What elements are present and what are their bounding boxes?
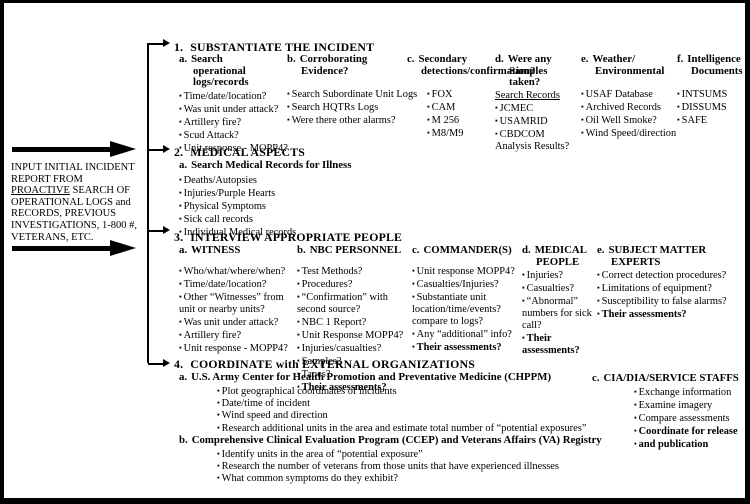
column-heading: b.Comprehensive Clinical Evaluation Prog… xyxy=(179,435,615,447)
column-d: d.Were any Samples taken?Search Records▪… xyxy=(495,54,579,153)
bullet-icon: ▪ xyxy=(495,129,498,138)
item-text: Scud Attack? xyxy=(184,130,239,141)
bullet-icon: ▪ xyxy=(297,330,300,339)
bullet-icon: ▪ xyxy=(677,102,680,111)
item-text: Search Records xyxy=(495,90,560,101)
bullet-icon: ▪ xyxy=(179,130,182,139)
item-text: Deaths/Autopsies xyxy=(184,175,257,186)
column-label: a. xyxy=(179,371,187,383)
list-item: ▪Research additional units in the area a… xyxy=(217,422,615,434)
item-text: Time/date/location? xyxy=(184,279,267,290)
column-main: a.U.S. Army Center for Health Promotion … xyxy=(179,372,615,485)
note-text: SEARCH OF xyxy=(70,185,130,196)
item-list: ▪Exchange information▪Examine imagery▪Co… xyxy=(592,386,750,451)
item-text: Their assessments? xyxy=(522,333,580,356)
bullet-icon: ▪ xyxy=(179,214,182,223)
list-item: ▪Artillery fire? xyxy=(179,329,297,342)
branch-arrow-section-2-icon xyxy=(148,145,170,154)
column-a: a.Search Medical Records for Illness▪Dea… xyxy=(179,160,750,239)
section-s3: 3.INTERVIEW APPROPRIATE PEOPLEa.WITNESS▪… xyxy=(174,231,750,244)
column-heading-text: U.S. Army Center for Health Promotion an… xyxy=(191,371,551,383)
list-item: ▪Injuries? xyxy=(522,269,598,282)
column-label: e. xyxy=(581,53,589,65)
list-item: ▪Archived Records xyxy=(581,101,677,114)
column-heading-text: MEDICAL PEOPLE xyxy=(535,244,587,268)
bullet-icon: ▪ xyxy=(581,102,584,111)
column-f: f.Intelligence Documents▪INTSUMS▪DISSUMS… xyxy=(677,54,750,127)
list-item: ▪Their assessments? xyxy=(522,332,598,357)
column-e: e.Weather/ Environmental▪USAF Database▪A… xyxy=(581,54,677,140)
item-text: Research additional units in the area an… xyxy=(222,423,587,434)
item-text: Substantiate unit location/time/events? … xyxy=(412,292,501,327)
list-item: ▪Artillery fire? xyxy=(179,116,285,129)
column-heading-text: Comprehensive Clinical Evaluation Progra… xyxy=(192,434,602,446)
arrow-head-icon xyxy=(110,141,136,157)
item-text: Exchange information xyxy=(639,387,732,398)
column-label: d. xyxy=(495,53,504,65)
column-heading: a.Search operational logs/records xyxy=(179,54,263,89)
item-list: ▪Plot geographical coordinates of incide… xyxy=(179,385,615,435)
column-heading-text: Intelligence Documents xyxy=(687,53,742,77)
item-text: Date/time of incident xyxy=(222,398,310,409)
item-list: ▪Search Subordinate Unit Logs▪Search HQT… xyxy=(287,88,415,127)
bullet-icon: ▪ xyxy=(412,279,415,288)
note-line: INPUT INITIAL INCIDENT xyxy=(11,162,156,174)
column-heading: e.SUBJECT MATTER EXPERTS xyxy=(597,245,743,268)
item-text: Their assessments? xyxy=(602,309,687,320)
note-line: INVESTIGATIONS, 1-800 #, xyxy=(11,220,156,232)
list-item: ▪INTSUMS xyxy=(677,88,750,101)
bullet-icon: ▪ xyxy=(179,343,182,352)
column-heading: c.COMMANDER(S) xyxy=(412,245,520,264)
item-text: CAM xyxy=(432,102,456,113)
column-heading: b.Corroborating Evidence? xyxy=(287,54,397,87)
item-text: Unit response MOPP4? xyxy=(417,266,515,277)
list-item: ▪DISSUMS xyxy=(677,101,750,114)
column-heading-text: Search Medical Records for Illness xyxy=(191,159,351,171)
list-item: ▪Unit response - MOPP4? xyxy=(179,342,297,355)
list-item: ▪Plot geographical coordinates of incide… xyxy=(217,385,615,397)
column-heading-text: Weather/ Environmental xyxy=(593,53,665,77)
column-heading: b.NBC PERSONNEL xyxy=(297,245,409,264)
column-c: c.COMMANDER(S)▪Unit response MOPP4?▪Casu… xyxy=(412,245,520,354)
list-item: ▪Wind speed and direction xyxy=(217,409,615,421)
item-list: ▪INTSUMS▪DISSUMS▪SAFE xyxy=(677,88,750,127)
note-line: REPORT FROM xyxy=(11,174,156,186)
list-item: ▪Casualties/Injuries? xyxy=(412,278,520,291)
item-text: Susceptibility to false alarms? xyxy=(602,296,727,307)
item-text: Correct detection procedures? xyxy=(602,270,727,281)
list-item: ▪Substantiate unit location/time/events?… xyxy=(412,291,520,328)
arrow-shaft xyxy=(12,147,114,152)
item-text: Unit Response MOPP4? xyxy=(302,330,404,341)
column-heading: f.Intelligence Documents xyxy=(677,54,750,87)
bullet-icon: ▪ xyxy=(522,283,525,292)
branch-arrow-section-1-icon xyxy=(148,39,170,48)
bullet-icon: ▪ xyxy=(412,342,415,351)
section-title-text: MEDICAL ASPECTS xyxy=(190,145,305,159)
item-text: Physical Symptoms xyxy=(184,201,266,212)
note-line: OPERATIONAL LOGS and xyxy=(11,197,156,209)
connector-line xyxy=(148,43,164,45)
list-item: ▪Search HQTRs Logs xyxy=(287,101,415,114)
list-item: ▪M8/M9 xyxy=(427,127,495,140)
branch-arrow-section-3-icon xyxy=(148,226,170,235)
list-item: ▪JCMEC xyxy=(495,102,579,115)
item-text: Wind speed and direction xyxy=(222,410,328,421)
item-text: Was unit under attack? xyxy=(184,104,279,115)
list-item: ▪FOX xyxy=(427,88,495,101)
section-s2: 2.MEDICAL ASPECTSa.Search Medical Record… xyxy=(174,146,750,239)
column-heading-text: Search operational logs/records xyxy=(191,53,248,88)
item-text: Who/what/where/when? xyxy=(184,266,286,277)
bullet-icon: ▪ xyxy=(495,103,498,112)
item-text: CBDCOM xyxy=(500,129,545,140)
column-label: e. xyxy=(597,244,605,256)
item-list: ▪Injuries?▪Casualties?▪“Abnormal” number… xyxy=(522,269,598,357)
item-text: NBC 1 Report? xyxy=(302,317,367,328)
list-item: ▪Wind Speed/direction xyxy=(581,127,677,140)
column-c: c.Secondary detections/confirmation?▪FOX… xyxy=(407,54,495,140)
bullet-icon: ▪ xyxy=(522,270,525,279)
item-text: Any “additional” info? xyxy=(417,329,512,340)
column-heading: d.MEDICAL PEOPLE xyxy=(522,245,598,268)
list-item: ▪“Abnormal” numbers for sick call? xyxy=(522,295,598,332)
branch-arrow-section-4-icon xyxy=(148,359,170,368)
column-heading-text: Were any Samples taken? xyxy=(508,53,552,88)
item-text: Artillery fire? xyxy=(184,330,241,341)
item-text: Injuries/casualties? xyxy=(302,343,382,354)
list-item: ▪USAF Database xyxy=(581,88,677,101)
section-title: 2.MEDICAL ASPECTS xyxy=(174,146,750,159)
item-text: Procedures? xyxy=(302,279,353,290)
bullet-icon: ▪ xyxy=(297,317,300,326)
bullet-icon: ▪ xyxy=(179,317,182,326)
bullet-icon: ▪ xyxy=(297,266,300,275)
list-item: ▪Their assessments? xyxy=(597,308,749,321)
diagram-page: INPUT INITIAL INCIDENTREPORT FROMPROACTI… xyxy=(0,0,750,504)
column-b: b.Corroborating Evidence?▪Search Subordi… xyxy=(287,54,415,127)
bullet-icon: ▪ xyxy=(287,89,290,98)
column-heading-text: Corroborating Evidence? xyxy=(300,53,368,77)
section-number: 1. xyxy=(174,40,183,54)
bullet-icon: ▪ xyxy=(179,279,182,288)
bullet-icon: ▪ xyxy=(412,329,415,338)
item-list: ▪FOX▪CAM▪M 256▪M8/M9 xyxy=(407,88,495,140)
bullet-icon: ▪ xyxy=(179,266,182,275)
bullet-icon: ▪ xyxy=(217,461,220,470)
bullet-icon: ▪ xyxy=(179,104,182,113)
column-label: a. xyxy=(179,53,187,65)
connector-vertical-line xyxy=(147,43,149,363)
item-text: SAFE xyxy=(682,115,707,126)
list-item: ▪SAFE xyxy=(677,114,750,127)
item-text: Archived Records xyxy=(586,102,661,113)
list-item: ▪Injuries/Purple Hearts xyxy=(179,187,750,200)
list-item: ▪Exchange information xyxy=(634,386,750,399)
item-text: Was unit under attack? xyxy=(184,317,279,328)
list-item: ▪Sick call records xyxy=(179,213,750,226)
section-s4: 4.COORDINATE with EXTERNAL ORGANIZATIONS… xyxy=(174,358,750,486)
item-text: Limitations of equipment? xyxy=(602,283,712,294)
bullet-icon: ▪ xyxy=(217,473,220,482)
section-title: 4.COORDINATE with EXTERNAL ORGANIZATIONS xyxy=(174,358,750,371)
bullet-icon: ▪ xyxy=(179,117,182,126)
column-label: a. xyxy=(179,159,187,171)
item-text: Coordinate for release xyxy=(639,426,738,437)
list-item: ▪Procedures? xyxy=(297,278,409,291)
connector-line xyxy=(148,230,164,232)
arrow-head-icon xyxy=(110,240,136,256)
section-number: 2. xyxy=(174,145,183,159)
bullet-icon: ▪ xyxy=(427,115,430,124)
item-text: Artillery fire? xyxy=(184,117,241,128)
column-label: b. xyxy=(287,53,296,65)
bullet-icon: ▪ xyxy=(495,116,498,125)
connector-line xyxy=(148,363,164,365)
arrowhead-icon xyxy=(163,145,170,153)
item-text: Search HQTRs Logs xyxy=(292,102,379,113)
item-text: Other “Witnesses” from unit or nearby un… xyxy=(179,292,284,315)
column-heading-text: WITNESS xyxy=(191,244,240,256)
bullet-icon: ▪ xyxy=(677,115,680,124)
bullet-icon: ▪ xyxy=(597,283,600,292)
list-item: ▪Unit response MOPP4? xyxy=(412,265,520,278)
bullet-icon: ▪ xyxy=(287,115,290,124)
section-title: 3.INTERVIEW APPROPRIATE PEOPLE xyxy=(174,231,750,244)
bullet-icon: ▪ xyxy=(597,270,600,279)
bullet-icon: ▪ xyxy=(179,91,182,100)
item-text: What common symptoms do they exhibit? xyxy=(222,473,398,484)
list-item: ▪and publication xyxy=(634,438,750,451)
bullet-icon: ▪ xyxy=(412,292,415,301)
bullet-icon: ▪ xyxy=(634,439,637,448)
bullet-icon: ▪ xyxy=(677,89,680,98)
list-item: ▪Physical Symptoms xyxy=(179,200,750,213)
column-heading-text: COMMANDER(S) xyxy=(424,244,512,256)
item-text: FOX xyxy=(432,89,453,100)
list-item: ▪Was unit under attack? xyxy=(179,316,297,329)
arrow-shaft xyxy=(12,246,114,251)
item-text: Wind Speed/direction xyxy=(586,128,676,139)
bullet-icon: ▪ xyxy=(217,449,220,458)
section-s1: 1.SUBSTANTIATE THE INCIDENTa.Search oper… xyxy=(174,41,750,54)
item-text: Plot geographical coordinates of inciden… xyxy=(222,386,397,397)
note-line: PROACTIVE SEARCH OF xyxy=(11,185,156,197)
bullet-icon: ▪ xyxy=(522,296,525,305)
column-heading: d.Were any Samples taken? xyxy=(495,54,571,89)
bullet-icon: ▪ xyxy=(297,292,300,301)
list-item: ▪Time/date/location? xyxy=(179,278,297,291)
bullet-icon: ▪ xyxy=(297,279,300,288)
item-text: Injuries? xyxy=(527,270,563,281)
item-text: JCMEC xyxy=(500,103,534,114)
list-item: ▪Other “Witnesses” from unit or nearby u… xyxy=(179,291,297,316)
input-note: INPUT INITIAL INCIDENTREPORT FROMPROACTI… xyxy=(11,162,156,243)
connector-line xyxy=(148,149,164,151)
list-item: ▪Susceptibility to false alarms? xyxy=(597,295,749,308)
item-text: INTSUMS xyxy=(682,89,728,100)
column-heading: c.CIA/DIA/SERVICE STAFFS xyxy=(592,373,750,385)
column-heading: a.WITNESS xyxy=(179,245,297,264)
item-list: ▪Correct detection procedures?▪Limitatio… xyxy=(597,269,749,321)
column-c: c.CIA/DIA/SERVICE STAFFS▪Exchange inform… xyxy=(592,373,750,451)
section-number: 4. xyxy=(174,357,183,371)
item-text: USAMRID xyxy=(500,116,548,127)
list-item: ▪Date/time of incident xyxy=(217,397,615,409)
bullet-icon: ▪ xyxy=(179,201,182,210)
bullet-icon: ▪ xyxy=(179,175,182,184)
input-arrow-bottom-icon xyxy=(12,240,136,256)
arrowhead-icon xyxy=(163,39,170,47)
note-line: RECORDS, PREVIOUS xyxy=(11,208,156,220)
list-item: ▪Research the number of veterans from th… xyxy=(217,460,615,472)
note-text-underlined: PROACTIVE xyxy=(11,185,70,196)
list-item: ▪What common symptoms do they exhibit? xyxy=(217,472,615,484)
item-list: ▪Unit response MOPP4?▪Casualties/Injurie… xyxy=(412,265,520,354)
bullet-icon: ▪ xyxy=(634,387,637,396)
list-item: ▪Oil Well Smoke? xyxy=(581,114,677,127)
column-heading: a.Search Medical Records for Illness xyxy=(179,160,750,172)
arrowhead-icon xyxy=(163,359,170,367)
section-title-text: COORDINATE with EXTERNAL ORGANIZATIONS xyxy=(190,357,475,371)
column-heading: a.U.S. Army Center for Health Promotion … xyxy=(179,372,615,384)
section-title-text: SUBSTANTIATE THE INCIDENT xyxy=(190,40,374,54)
list-item: ▪Identify units in the area of “potentia… xyxy=(217,448,615,460)
list-item: ▪NBC 1 Report? xyxy=(297,316,409,329)
item-text: Injuries/Purple Hearts xyxy=(184,188,275,199)
list-item: ▪Deaths/Autopsies xyxy=(179,174,750,187)
list-item: ▪Time/date/location? xyxy=(179,90,285,103)
column-heading: e.Weather/ Environmental xyxy=(581,54,677,87)
item-text: “Confirmation” with second source? xyxy=(297,292,388,315)
bullet-icon: ▪ xyxy=(179,292,182,301)
column-label: c. xyxy=(412,244,420,256)
list-item: ▪CBDCOM xyxy=(495,128,579,141)
bullet-icon: ▪ xyxy=(412,266,415,275)
bullet-icon: ▪ xyxy=(634,400,637,409)
bullet-icon: ▪ xyxy=(581,89,584,98)
item-text: Compare assessments xyxy=(639,413,730,424)
item-text: Identify units in the area of “potential… xyxy=(222,449,423,460)
item-list: ▪Deaths/Autopsies▪Injuries/Purple Hearts… xyxy=(179,174,750,239)
bullet-icon: ▪ xyxy=(581,128,584,137)
list-item: ▪Casualties? xyxy=(522,282,598,295)
item-text: Research the number of veterans from tho… xyxy=(222,461,559,472)
item-text: Their assessments? xyxy=(417,342,502,353)
column-heading-text: SUBJECT MATTER EXPERTS xyxy=(609,244,707,268)
input-arrow-top-icon xyxy=(12,141,136,157)
column-label: b. xyxy=(297,244,306,256)
bullet-icon: ▪ xyxy=(634,426,637,435)
list-item: ▪Unit Response MOPP4? xyxy=(297,329,409,342)
column-e: e.SUBJECT MATTER EXPERTS▪Correct detecti… xyxy=(597,245,749,321)
item-text: USAF Database xyxy=(586,89,653,100)
list-item: ▪Who/what/where/when? xyxy=(179,265,297,278)
bullet-icon: ▪ xyxy=(179,188,182,197)
list-item: ▪Was unit under attack? xyxy=(179,103,285,116)
item-text: Examine imagery xyxy=(639,400,713,411)
item-text: Casualties? xyxy=(527,283,574,294)
list-item: ▪Were there other alarms? xyxy=(287,114,415,127)
list-item: ▪Examine imagery xyxy=(634,399,750,412)
item-list: ▪Identify units in the area of “potentia… xyxy=(179,448,615,485)
column-label: a. xyxy=(179,244,187,256)
item-text: Test Methods? xyxy=(302,266,363,277)
bullet-icon: ▪ xyxy=(427,128,430,137)
list-item: ▪CAM xyxy=(427,101,495,114)
item-text: Oil Well Smoke? xyxy=(586,115,657,126)
list-item: ▪USAMRID xyxy=(495,115,579,128)
item-text: Search Subordinate Unit Logs xyxy=(292,89,418,100)
list-item: ▪Limitations of equipment? xyxy=(597,282,749,295)
item-text: M8/M9 xyxy=(432,128,464,139)
list-item: ▪Scud Attack? xyxy=(179,129,285,142)
section-title-text: INTERVIEW APPROPRIATE PEOPLE xyxy=(190,230,402,244)
item-text: Sick call records xyxy=(184,214,253,225)
column-a: a.Search operational logs/records▪Time/d… xyxy=(179,54,285,155)
column-label: b. xyxy=(179,434,188,446)
list-item: ▪Search Subordinate Unit Logs xyxy=(287,88,415,101)
item-text: Time/date/location? xyxy=(184,91,267,102)
item-text: Casualties/Injuries? xyxy=(417,279,499,290)
bullet-icon: ▪ xyxy=(217,398,220,407)
column-label: f. xyxy=(677,53,683,65)
column-heading: c.Secondary detections/confirmation? xyxy=(407,54,495,87)
list-item: ▪Compare assessments xyxy=(634,412,750,425)
arrowhead-icon xyxy=(163,226,170,234)
item-text: Unit response - MOPP4? xyxy=(184,343,288,354)
bullet-icon: ▪ xyxy=(217,386,220,395)
list-item: ▪Coordinate for release xyxy=(634,425,750,438)
bullet-icon: ▪ xyxy=(634,413,637,422)
item-list: ▪USAF Database▪Archived Records▪Oil Well… xyxy=(581,88,677,140)
column-label: c. xyxy=(407,53,415,65)
list-item: Search Records xyxy=(495,90,579,102)
bullet-icon: ▪ xyxy=(522,333,525,342)
section-number: 3. xyxy=(174,230,183,244)
column-a: a.WITNESS▪Who/what/where/when?▪Time/date… xyxy=(179,245,297,355)
list-item: ▪Any “additional” info? xyxy=(412,328,520,341)
list-item: ▪Injuries/casualties? xyxy=(297,342,409,355)
bullet-icon: ▪ xyxy=(217,410,220,419)
bullet-icon: ▪ xyxy=(217,423,220,432)
item-text: M 256 xyxy=(432,115,459,126)
item-text: and publication xyxy=(639,439,709,450)
column-label: c. xyxy=(592,372,600,384)
list-item: ▪Their assessments? xyxy=(412,341,520,354)
item-text: Were there other alarms? xyxy=(292,115,396,126)
bullet-icon: ▪ xyxy=(427,89,430,98)
column-label: d. xyxy=(522,244,531,256)
item-list: ▪Who/what/where/when?▪Time/date/location… xyxy=(179,265,297,355)
bullet-icon: ▪ xyxy=(427,102,430,111)
list-item: ▪“Confirmation” with second source? xyxy=(297,291,409,316)
bullet-icon: ▪ xyxy=(287,102,290,111)
column-heading-text: CIA/DIA/SERVICE STAFFS xyxy=(604,372,739,384)
item-text: DISSUMS xyxy=(682,102,727,113)
list-item: ▪Correct detection procedures? xyxy=(597,269,749,282)
list-item: ▪M 256 xyxy=(427,114,495,127)
column-heading-text: NBC PERSONNEL xyxy=(310,244,402,256)
item-text: “Abnormal” numbers for sick call? xyxy=(522,296,592,331)
bullet-icon: ▪ xyxy=(597,309,600,318)
bullet-icon: ▪ xyxy=(581,115,584,124)
bullet-icon: ▪ xyxy=(597,296,600,305)
item-list: Search Records▪JCMEC▪USAMRID▪CBDCOMAnaly… xyxy=(495,90,579,153)
list-item: ▪Test Methods? xyxy=(297,265,409,278)
bullet-icon: ▪ xyxy=(179,330,182,339)
